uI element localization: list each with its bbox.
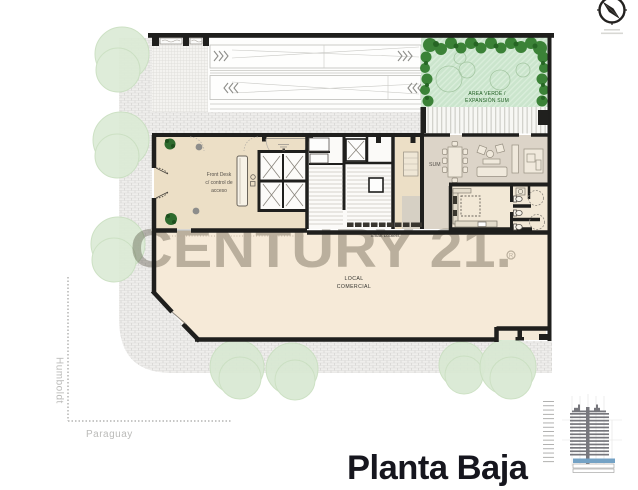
svg-text:Humboldt: Humboldt — [54, 357, 65, 404]
svg-text:acceso: acceso — [211, 188, 227, 194]
svg-text:SUM: SUM — [429, 162, 441, 168]
svg-text:Smart Lockers: Smart Lockers — [370, 233, 400, 238]
svg-text:c/ control de: c/ control de — [205, 180, 232, 186]
svg-text:EXPANSIÓN SUM: EXPANSIÓN SUM — [465, 97, 509, 104]
svg-text:COMERCIAL: COMERCIAL — [337, 284, 371, 290]
svg-text:AREA VERDE /: AREA VERDE / — [468, 91, 506, 97]
svg-text:LOCAL: LOCAL — [344, 276, 363, 282]
svg-text:Paraguay: Paraguay — [86, 429, 133, 440]
svg-text:R: R — [509, 254, 514, 260]
svg-text:Planta Baja: Planta Baja — [347, 449, 529, 487]
svg-text:Front Desk: Front Desk — [207, 172, 232, 178]
